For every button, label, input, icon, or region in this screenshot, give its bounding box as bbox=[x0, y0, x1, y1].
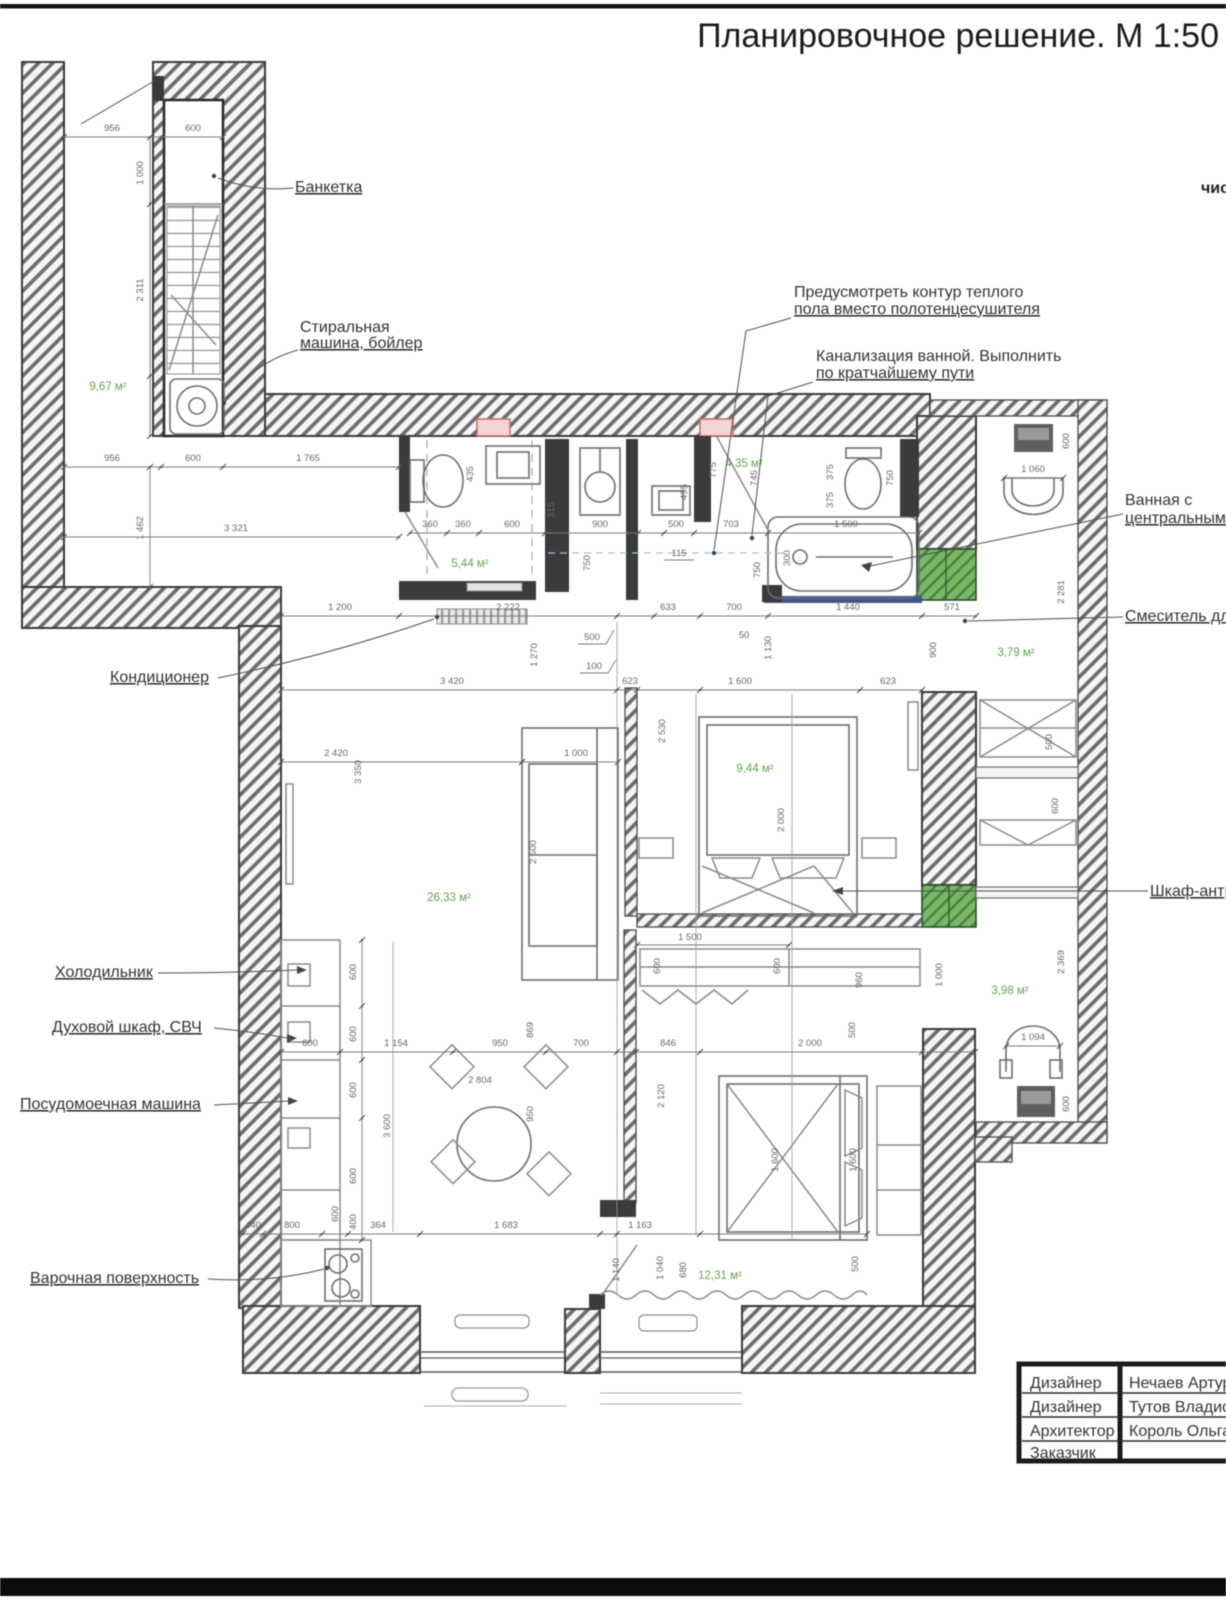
svg-text:571: 571 bbox=[944, 602, 960, 613]
svg-text:364: 364 bbox=[370, 1220, 386, 1231]
svg-text:600: 600 bbox=[348, 1082, 359, 1098]
svg-text:Заказчик: Заказчик bbox=[1030, 1445, 1097, 1462]
svg-text:Планировочное решение. М 1:50: Планировочное решение. М 1:50 bbox=[697, 17, 1219, 55]
svg-text:600: 600 bbox=[348, 964, 359, 980]
svg-text:1 500: 1 500 bbox=[834, 519, 858, 530]
svg-text:375: 375 bbox=[825, 492, 836, 508]
svg-text:1 462: 1 462 bbox=[135, 516, 146, 540]
svg-text:633: 633 bbox=[660, 602, 676, 613]
svg-text:Шкаф-антр: Шкаф-антр bbox=[1150, 883, 1226, 900]
svg-text:1 000: 1 000 bbox=[135, 161, 146, 185]
svg-text:100: 100 bbox=[586, 661, 602, 672]
svg-text:по кратчайшему пути: по кратчайшему пути bbox=[816, 365, 974, 382]
svg-text:Тутов Владисла: Тутов Владисла bbox=[1129, 1399, 1226, 1416]
svg-text:3,98 м²: 3,98 м² bbox=[991, 985, 1028, 997]
svg-text:869: 869 bbox=[525, 1022, 536, 1038]
svg-text:Посудомоечная машина: Посудомоечная машина bbox=[20, 1096, 201, 1113]
svg-text:2 000: 2 000 bbox=[798, 1038, 822, 1049]
svg-text:375: 375 bbox=[825, 464, 836, 480]
svg-text:623: 623 bbox=[880, 676, 896, 687]
svg-text:2 369: 2 369 bbox=[1056, 950, 1067, 974]
svg-text:1 200: 1 200 bbox=[328, 602, 352, 613]
svg-text:435: 435 bbox=[465, 466, 476, 482]
svg-text:26,33 м²: 26,33 м² bbox=[427, 892, 471, 904]
svg-text:2 120: 2 120 bbox=[656, 1084, 667, 1108]
svg-text:600: 600 bbox=[1061, 1096, 1072, 1112]
svg-text:Ванная с: Ванная с bbox=[1125, 492, 1192, 509]
svg-text:1 683: 1 683 bbox=[494, 1220, 518, 1231]
svg-text:2 000: 2 000 bbox=[776, 808, 787, 832]
svg-text:3,79 м²: 3,79 м² bbox=[997, 647, 1034, 659]
svg-text:956: 956 bbox=[104, 453, 120, 464]
svg-text:600: 600 bbox=[185, 123, 201, 134]
svg-text:700: 700 bbox=[573, 1038, 589, 1049]
svg-text:Канализация ванной. Выполнить: Канализация ванной. Выполнить bbox=[816, 348, 1061, 365]
svg-text:9,67 м²: 9,67 м² bbox=[89, 381, 126, 393]
svg-text:315: 315 bbox=[546, 502, 557, 518]
svg-text:950: 950 bbox=[492, 1038, 508, 1049]
svg-text:400: 400 bbox=[348, 1214, 359, 1230]
svg-text:2 311: 2 311 bbox=[135, 278, 146, 301]
svg-text:5,44 м²: 5,44 м² bbox=[451, 558, 488, 570]
svg-text:600: 600 bbox=[1050, 798, 1061, 814]
svg-text:1 440: 1 440 bbox=[836, 602, 860, 613]
svg-text:4,35 м²: 4,35 м² bbox=[725, 458, 762, 470]
svg-text:Смеситель дл: Смеситель дл bbox=[1125, 608, 1226, 625]
svg-text:2 420: 2 420 bbox=[324, 748, 348, 759]
svg-text:чис: чис bbox=[1201, 180, 1226, 197]
svg-text:115: 115 bbox=[671, 548, 686, 559]
svg-text:Дизайнер: Дизайнер bbox=[1030, 1399, 1102, 1416]
svg-text:300: 300 bbox=[782, 550, 793, 566]
svg-text:900: 900 bbox=[928, 642, 939, 658]
svg-text:600: 600 bbox=[348, 1168, 359, 1184]
svg-text:750: 750 bbox=[582, 555, 593, 571]
svg-text:623: 623 bbox=[622, 676, 638, 687]
svg-text:600: 600 bbox=[504, 519, 520, 530]
svg-text:600: 600 bbox=[348, 1026, 359, 1042]
svg-text:Банкетка: Банкетка bbox=[295, 179, 362, 196]
svg-text:750: 750 bbox=[752, 562, 763, 578]
svg-text:1 765: 1 765 bbox=[296, 453, 320, 464]
svg-text:машина, бойлер: машина, бойлер bbox=[300, 335, 423, 352]
svg-text:1 600: 1 600 bbox=[728, 676, 752, 687]
svg-text:50: 50 bbox=[739, 630, 750, 641]
svg-text:1 130: 1 130 bbox=[763, 636, 774, 660]
svg-text:Король Ольга: Король Ольга bbox=[1129, 1423, 1226, 1440]
svg-text:800: 800 bbox=[284, 1220, 300, 1231]
svg-text:500: 500 bbox=[584, 632, 600, 643]
svg-text:600: 600 bbox=[652, 958, 663, 974]
svg-text:703: 703 bbox=[723, 519, 739, 530]
svg-text:Предусмотреть контур теплого: Предусмотреть контур теплого bbox=[794, 284, 1024, 301]
svg-text:Нечаев Артур: Нечаев Артур bbox=[1129, 1375, 1226, 1392]
svg-text:846: 846 bbox=[660, 1038, 676, 1049]
svg-text:500: 500 bbox=[850, 1256, 861, 1272]
svg-text:Варочная поверхность: Варочная поверхность bbox=[30, 1270, 199, 1287]
svg-text:950: 950 bbox=[525, 1106, 536, 1122]
svg-text:1 140: 1 140 bbox=[611, 1258, 622, 1282]
svg-text:2 500: 2 500 bbox=[528, 840, 539, 864]
svg-text:1 163: 1 163 bbox=[628, 1220, 652, 1231]
svg-text:2 281: 2 281 bbox=[1056, 580, 1067, 604]
svg-text:1 000: 1 000 bbox=[934, 963, 945, 987]
svg-text:360: 360 bbox=[422, 519, 438, 530]
svg-text:Холодильник: Холодильник bbox=[55, 964, 154, 981]
svg-text:1 600: 1 600 bbox=[848, 1148, 859, 1172]
svg-text:1 270: 1 270 bbox=[529, 643, 540, 667]
svg-text:1 154: 1 154 bbox=[384, 1038, 408, 1049]
svg-text:3 321: 3 321 bbox=[224, 523, 248, 534]
svg-text:495: 495 bbox=[679, 484, 690, 500]
svg-text:1 060: 1 060 bbox=[1021, 464, 1045, 475]
svg-text:600: 600 bbox=[185, 453, 201, 464]
svg-text:500: 500 bbox=[668, 519, 684, 530]
svg-text:440: 440 bbox=[245, 1220, 261, 1231]
svg-text:1 094: 1 094 bbox=[1021, 1032, 1045, 1043]
svg-text:775: 775 bbox=[708, 462, 719, 478]
svg-text:Кондиционер: Кондиционер bbox=[110, 669, 209, 686]
svg-text:900: 900 bbox=[592, 519, 608, 530]
svg-text:956: 956 bbox=[104, 123, 120, 134]
svg-text:750: 750 bbox=[885, 470, 896, 486]
svg-text:1 040: 1 040 bbox=[655, 1256, 666, 1280]
svg-text:пола вместо полотенцесушителя: пола вместо полотенцесушителя bbox=[794, 301, 1040, 318]
svg-text:1 500: 1 500 bbox=[678, 932, 702, 943]
svg-text:2 222: 2 222 bbox=[496, 602, 520, 613]
svg-text:500: 500 bbox=[847, 1022, 858, 1038]
svg-text:600: 600 bbox=[772, 958, 783, 974]
svg-text:12,31 м²: 12,31 м² bbox=[698, 1270, 742, 1282]
svg-text:700: 700 bbox=[726, 602, 742, 613]
svg-text:1 600: 1 600 bbox=[770, 1148, 781, 1172]
svg-text:Архитектор: Архитектор bbox=[1030, 1423, 1115, 1440]
svg-text:центральным с: центральным с bbox=[1125, 510, 1226, 527]
svg-text:360: 360 bbox=[455, 519, 471, 530]
svg-text:1 000: 1 000 bbox=[564, 748, 588, 759]
svg-text:600: 600 bbox=[330, 1206, 341, 1222]
svg-text:Духовой шкаф, СВЧ: Духовой шкаф, СВЧ bbox=[52, 1019, 202, 1036]
svg-text:3 420: 3 420 bbox=[440, 676, 464, 687]
svg-text:2 804: 2 804 bbox=[468, 1075, 492, 1086]
svg-text:680: 680 bbox=[678, 1262, 689, 1278]
svg-text:9,44 м²: 9,44 м² bbox=[736, 763, 773, 775]
svg-text:3 350: 3 350 bbox=[353, 760, 364, 784]
svg-text:Стиральная: Стиральная bbox=[300, 319, 390, 336]
svg-text:Дизайнер: Дизайнер bbox=[1030, 1375, 1102, 1392]
svg-text:600: 600 bbox=[302, 1038, 318, 1049]
svg-text:500: 500 bbox=[1044, 734, 1055, 750]
svg-text:960: 960 bbox=[854, 972, 865, 988]
svg-text:600: 600 bbox=[1061, 433, 1072, 449]
svg-text:3 600: 3 600 bbox=[382, 1114, 393, 1138]
svg-text:2 530: 2 530 bbox=[657, 719, 668, 743]
